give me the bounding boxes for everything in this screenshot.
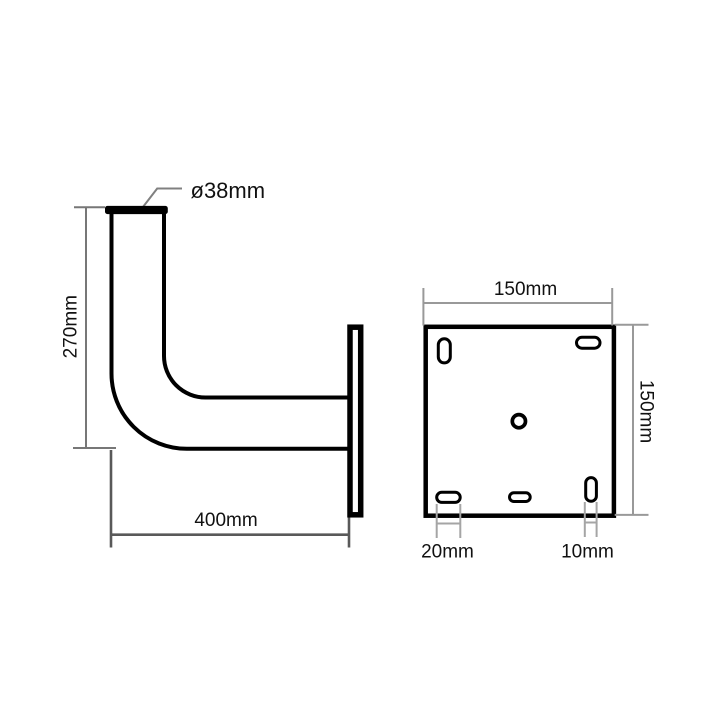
svg-text:150mm: 150mm	[494, 279, 557, 300]
svg-text:ø38mm: ø38mm	[191, 178, 266, 203]
svg-text:150mm: 150mm	[635, 380, 656, 443]
svg-text:270mm: 270mm	[61, 295, 82, 358]
svg-text:20mm: 20mm	[421, 542, 474, 563]
svg-text:400mm: 400mm	[194, 510, 257, 531]
svg-text:10mm: 10mm	[561, 542, 614, 563]
